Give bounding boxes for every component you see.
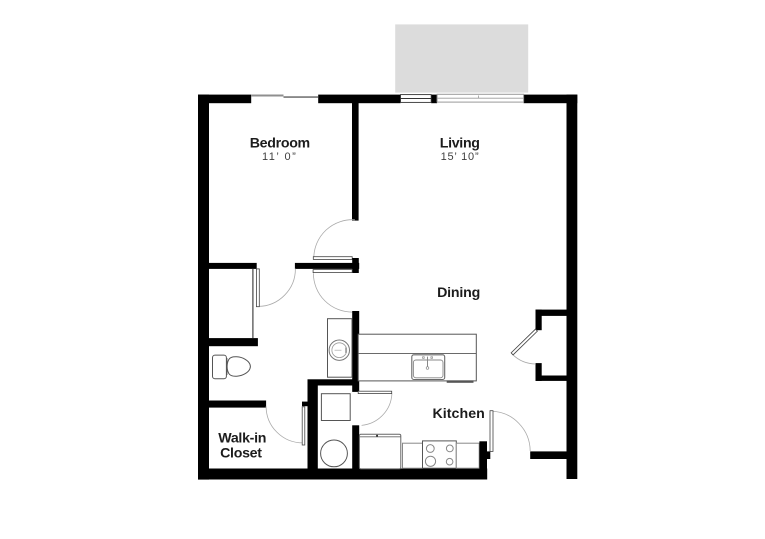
svg-text:Walk-in: Walk-in	[218, 430, 266, 446]
svg-text:Kitchen: Kitchen	[433, 406, 485, 422]
svg-text:Closet: Closet	[220, 445, 262, 461]
svg-text:Bedroom: Bedroom	[250, 135, 310, 151]
svg-text:Dining: Dining	[437, 285, 480, 301]
svg-text:15’ 10”: 15’ 10”	[441, 151, 480, 163]
svg-text:Living: Living	[440, 135, 480, 151]
svg-text:11’ 0”: 11’ 0”	[262, 151, 297, 163]
